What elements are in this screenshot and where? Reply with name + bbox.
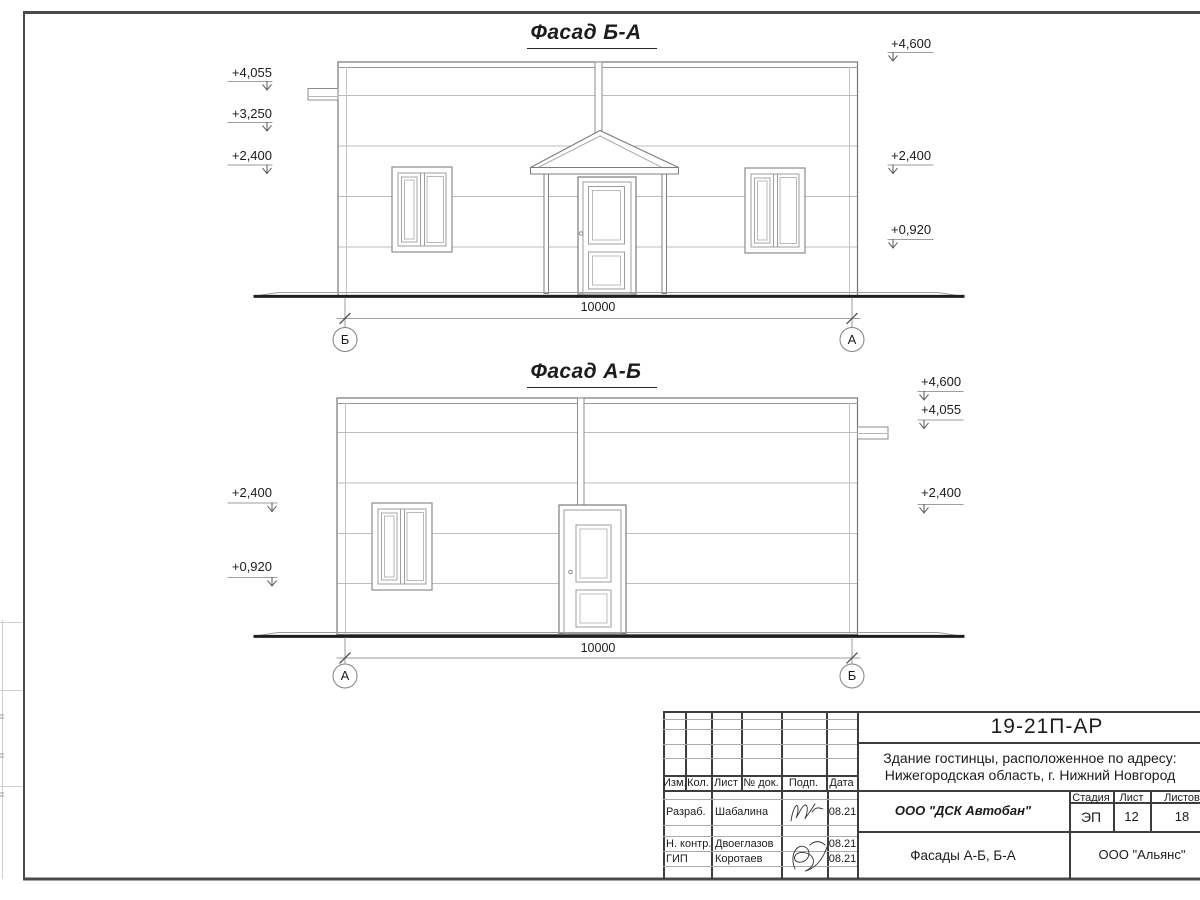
elevation-mark-label: +2,400 <box>197 149 272 164</box>
signature-row-date: 08.21 <box>828 806 857 819</box>
window <box>372 503 432 590</box>
column-header-podp: Подп. <box>781 777 826 790</box>
column-header-list: Лист <box>711 777 741 790</box>
signature-row-role: Н. контр. <box>666 838 712 851</box>
object-address-line2: Нижегородская область, г. Нижний Новгоро… <box>860 767 1200 783</box>
signature-row-name: Шабалина <box>715 806 779 819</box>
drawing-title: Фасады А-Б, Б-А <box>860 848 1066 864</box>
wall-vent <box>858 427 889 439</box>
entrance-door <box>559 505 626 634</box>
elevation-mark-label: +2,400 <box>197 486 272 501</box>
window <box>745 168 805 253</box>
document-number: 19-21П-АР <box>887 715 1200 739</box>
developer-company: ООО "ДСК Автобан" <box>860 804 1066 819</box>
axis-marker: Б <box>333 333 357 348</box>
drawing-sheet: Фасад Б-А +4,055 +3,250 +2,400 +4,600 +2… <box>0 0 1200 900</box>
column-header-kol: Кол. <box>685 777 711 790</box>
axis-marker: А <box>333 669 357 684</box>
facade2-title: Фасад А-Б <box>442 360 742 388</box>
stage-label: Стадия <box>1069 792 1113 805</box>
signature-row-date: 08.21 <box>828 838 857 851</box>
sheets-label: Листов <box>1150 792 1200 805</box>
elevation-mark-label: +4,055 <box>921 403 996 418</box>
sheets-value: 18 <box>1150 810 1200 825</box>
roof-pipe <box>578 398 585 505</box>
roof-pipe <box>595 62 602 136</box>
elevation-mark-label: +4,600 <box>891 37 966 52</box>
signature-row-name: Двоеглазов <box>715 838 779 851</box>
window <box>392 167 452 252</box>
axis-marker: Б <box>840 669 864 684</box>
signature-shabalina <box>791 804 823 821</box>
entrance-door <box>578 177 636 294</box>
signature-row-role: Разраб. <box>666 806 710 819</box>
column-header-izm: Изм. <box>663 777 685 790</box>
elevation-mark-label: +4,055 <box>197 66 272 81</box>
elevation-mark-label: +4,600 <box>921 375 996 390</box>
object-address-line1: Здание гостинцы, расположенное по адресу… <box>860 750 1200 766</box>
elevation-mark-label: +3,250 <box>197 107 272 122</box>
elevation-mark-label: +2,400 <box>921 486 996 501</box>
stage-value: ЭП <box>1069 809 1113 825</box>
dimension-label: 10000 <box>550 641 646 655</box>
elevation-mark-label: +0,920 <box>891 223 966 238</box>
elevation-mark-label: +0,920 <box>197 560 272 575</box>
facade1-title: Фасад Б-А <box>442 21 742 49</box>
signature-row-date: 08.21 <box>828 853 857 866</box>
elevation-mark-label: +2,400 <box>891 149 966 164</box>
sheet-label: Лист <box>1113 792 1150 805</box>
sheet-margin-marks <box>0 620 22 879</box>
wall-vent <box>308 89 338 101</box>
column-header-doc: № док. <box>741 777 781 790</box>
dimension-label: 10000 <box>550 300 646 314</box>
signature-row-role: ГИП <box>666 853 712 866</box>
contractor-company: ООО "Альянс" <box>1069 848 1200 863</box>
signatures <box>791 804 827 871</box>
axis-marker: А <box>840 333 864 348</box>
signature-row-name: Коротаев <box>715 853 779 866</box>
sheet-value: 12 <box>1113 810 1150 825</box>
column-header-data: Дата <box>826 777 857 790</box>
